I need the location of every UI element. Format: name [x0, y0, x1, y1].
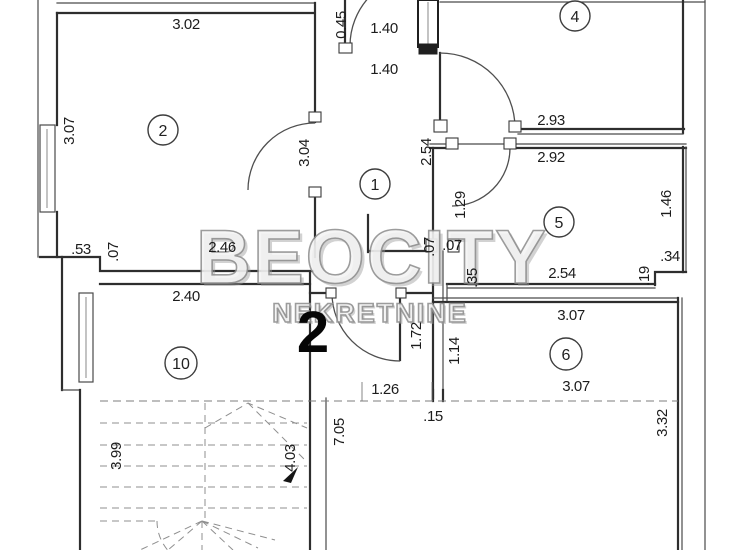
dim-label: 3.02: [172, 16, 200, 33]
dim-label: 3.32: [654, 409, 671, 437]
floor-number-label: 2: [297, 300, 329, 365]
dim-label: 1.40: [370, 61, 398, 78]
dim-label: 3.07: [61, 117, 78, 145]
dim-label: 1.29: [452, 191, 469, 219]
dim-label: 2.40: [172, 288, 200, 305]
room-number: 2: [159, 123, 168, 140]
watermark-line1: BEOCITY: [196, 215, 548, 300]
dim-label: 2.54: [418, 138, 435, 166]
room-number: 1: [371, 177, 380, 194]
dim-label: 3.07: [557, 307, 585, 324]
dim-label: 2.92: [537, 149, 565, 166]
dim-label: 4.03: [282, 444, 299, 472]
dim-label: 2.93: [537, 112, 565, 129]
floor-plan-canvas: BEOCITY BEOCITY NEKRETNINE NEKRETNINE 2 …: [0, 0, 740, 550]
dim-label: 3.99: [108, 442, 125, 470]
dim-label: 3.07: [562, 378, 590, 395]
dim-label: 7.05: [331, 418, 348, 446]
floor-plan-page: BEOCITY BEOCITY NEKRETNINE NEKRETNINE 2 …: [0, 0, 740, 550]
room-number: 4: [571, 9, 580, 26]
dim-label: 1.14: [446, 337, 463, 365]
window-left-upper: [40, 125, 55, 212]
room-number: 10: [172, 356, 190, 373]
dim-label: .34: [660, 248, 680, 265]
room-number: 5: [555, 215, 564, 232]
dim-label: 1.26: [371, 381, 399, 398]
dim-label: 1.72: [408, 322, 425, 350]
dim-label: .19: [636, 266, 653, 286]
dim-label: 2.54: [548, 265, 576, 282]
door-arc-room4: [440, 53, 515, 128]
room-number: 6: [562, 347, 571, 364]
dim-label: 3.04: [296, 139, 313, 167]
dim-label: .35: [464, 268, 481, 288]
watermark: BEOCITY BEOCITY NEKRETNINE NEKRETNINE: [196, 215, 551, 330]
dim-label: 1.40: [370, 20, 398, 37]
staircase: [100, 401, 678, 550]
dim-label: .07: [442, 237, 462, 254]
dim-label: .07: [421, 237, 438, 257]
dim-label: 0.45: [333, 11, 350, 39]
dim-label: .07: [105, 242, 122, 262]
window-jamb: [419, 44, 437, 54]
dim-label: 1.46: [658, 190, 675, 218]
dim-label: .15: [423, 408, 443, 425]
dim-label: .53: [71, 241, 91, 258]
dim-label: 2.46: [208, 239, 236, 256]
